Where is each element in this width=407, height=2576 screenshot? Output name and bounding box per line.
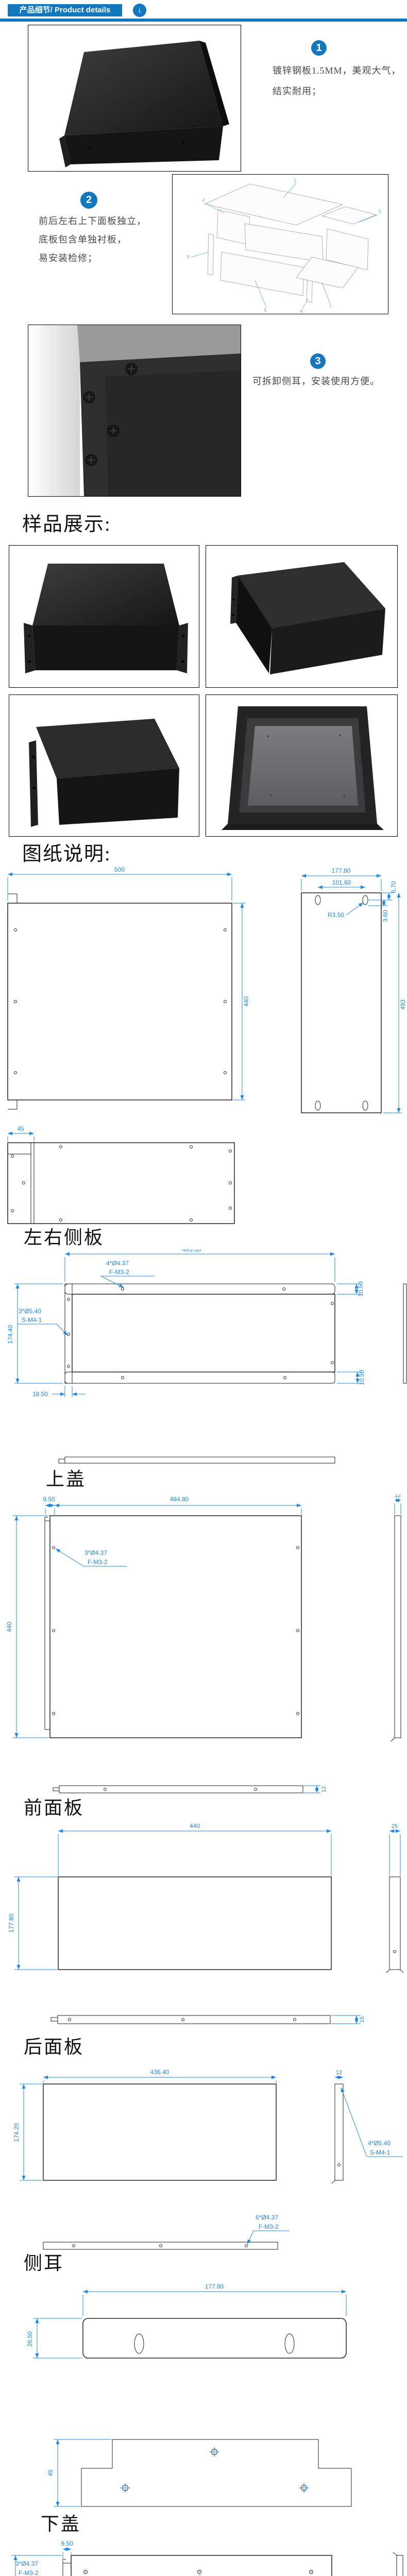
dim-label: 101.60 [332,879,351,886]
dimension-lines: 9.50 3*Ø4.37 F-M3-2 9*Ø5.40 BSO-3.5M3-10… [5,2540,353,2576]
part-number-label: 3 [379,209,381,214]
part-number-label: 7 [329,304,332,309]
feature-2-text-line2: 底板包含单独衬板， [39,235,127,244]
feature-2-text-line1: 前后左右上下面板独立， [39,216,146,226]
part-outline [59,1284,406,1463]
feature-3-text-line1: 可拆卸侧耳，安装使用方便。 [252,377,380,386]
dim-label: 45 [17,1125,24,1132]
dim-label: 3*Ø4.37 [84,1549,107,1556]
part-number-label: 6 [300,309,303,314]
part-outline [43,2084,343,2249]
standoff-holes [84,2570,313,2576]
drawing-ear: 177.80 26.50 45 [0,2277,407,2530]
feature-3-badge: 3 [310,353,326,369]
dim-label: 9.50 [43,1496,55,1503]
feature-2-badge: 2 [80,192,97,209]
dim-label: 12 [336,2070,342,2076]
product-detail-page: 产品细节/ Product details ↓ 1 镀锌钢板1.5MM，美观大气… [0,0,407,2576]
feature-2-text-line3: 易安装检修； [39,253,97,263]
page-title: 产品细节/ Product details [8,4,122,16]
dim-label: 4*Ø4.37 [106,1260,129,1267]
part-outline [51,1877,403,2024]
drawing-overall: 500 440 177.80 101.60 6.70 3.60 R3.50 49… [0,866,407,1119]
dimension-lines: 440 25 177.80 15 [8,1824,400,2024]
sample-photo-3 [9,694,199,837]
dim-label: 177.80 [8,1913,15,1933]
dim-label: 3.60 [382,910,389,922]
part-outline [8,1143,234,1224]
dim-label: 174.20 [13,2123,20,2142]
drawings-heading: 图纸说明: [22,844,111,866]
exploded-wireframe: 1 2 3 4 5 6 7 [173,175,388,314]
cross-marked-holes [120,2447,309,2493]
caption-rear-panel: 后面板 [24,2037,84,2058]
drawing-side-panel: 493.30 4*Ø4.37 F-M3-2 10.50 3*Ø5.40 S-M4… [0,1249,407,1494]
dim-label: 440 [190,1824,200,1829]
dim-label: 484.80 [170,1496,189,1503]
down-arrow-icon: ↓ [133,4,146,17]
part-number-label: 2 [202,198,205,202]
black-enclosure-photo [28,25,241,171]
dimension-lines: 9.50 484.80 12 3*Ø4.37 F-M3-2 440 12 [6,1494,401,1793]
dim-label: 10.50 [357,1281,364,1297]
sample-photo-2 [206,545,398,688]
ear-detail-photo [28,325,241,497]
dim-label: 4*Ø5.40 [368,2140,391,2147]
ear-closeup [28,325,241,496]
dim-label: 6*Ø4.37 [256,2214,278,2221]
dim-label: S-M4-1 [22,1316,42,1324]
caption-front-panel: 前面板 [24,1798,84,1819]
dim-label: 18.50 [32,1391,48,1398]
header-divider-bar [0,19,407,22]
dim-label: 9.50 [61,2540,73,2547]
dimension-lines: 45 [8,1125,34,1142]
drawing-front-panel: 440 25 177.80 15 [0,1824,407,2057]
feature-1-text-line1: 镀锌钢板1.5MM，美观大气， [273,66,401,75]
dim-label: 440 [6,1622,13,1632]
sample-angled [206,546,397,687]
dim-label: 45 [47,2469,54,2477]
caption-bottom-cover: 下盖 [41,2514,81,2535]
caption-side-ear: 侧耳 [24,2253,64,2274]
exploded-view-diagram: 1 2 3 4 5 6 7 [172,174,388,314]
caption-top-cover: 上盖 [46,1469,86,1490]
part-number-label: 4 [187,255,190,259]
dim-label: 12 [321,1786,327,1792]
dim-label: F-M3-2 [259,2223,279,2230]
sample-photo-4 [206,694,398,837]
part-number-label: 5 [264,308,267,313]
drawing-side-view: 45 [0,1119,407,1229]
dim-label: 3*Ø5.40 [19,1308,41,1315]
part-outline [63,2552,403,2576]
exploded-panels [205,184,376,302]
feature-1-badge: 1 [311,40,327,56]
dim-label: 177.80 [205,2283,224,2290]
part-number-label: 1 [294,178,297,183]
dim-label: R3.50 [328,911,344,919]
dim-label: 25 [392,1824,398,1829]
dim-label: S-M4-1 [370,2149,391,2156]
samples-heading: 样品展示: [22,514,111,536]
sample-front-left [9,695,199,836]
drawing-rear-panel: 436.40 12 4*Ø5.40 S-M4-1 174.20 6*Ø4.37 … [0,2059,407,2271]
dim-label: 493.30 [182,1249,201,1253]
dim-label: 500 [114,866,125,873]
part-outline [8,893,381,1113]
dim-label: F-M3-2 [19,2569,39,2576]
dim-label: 26.50 [26,2331,33,2347]
dim-label: F-M3-2 [88,1558,108,1566]
dim-label: 15 [359,2016,365,2023]
dim-label: 12 [395,1494,401,1499]
dim-label: 6.70 [390,881,397,893]
dim-label: F-M3-2 [109,1268,129,1276]
dim-label: 177.80 [332,867,351,874]
drawing-bottom-cover: 9.50 3*Ø4.37 F-M3-2 9*Ø5.40 BSO-3.5M3-10… [0,2535,407,2576]
dimension-lines: 493.30 4*Ø4.37 F-M3-2 10.50 3*Ø5.40 S-M4… [7,1249,365,1398]
sample-photo-1 [9,545,199,688]
caption-side-panels: 左右侧板 [24,1228,104,1248]
dim-label: 3*Ø4.37 [15,2560,38,2567]
dim-label: 440 [243,996,250,1007]
part-outline [81,2318,351,2506]
feature-1-text-line2: 结实耐用； [273,87,321,96]
dim-label: 493 [399,999,406,1010]
sample-front-top [9,546,199,687]
dimension-lines: 436.40 12 4*Ø5.40 S-M4-1 174.20 6*Ø4.37 … [13,2069,403,2244]
sample-interior [206,695,397,836]
part-outline [45,1516,401,1793]
dimension-lines: 177.80 26.50 45 [26,2283,346,2506]
product-photo-main [28,25,241,172]
drawing-top-cover: 9.50 484.80 12 3*Ø4.37 F-M3-2 440 12 [0,1494,407,1821]
dim-label: 174.40 [7,1325,14,1344]
dim-label: 436.40 [150,2069,169,2076]
dim-label: 10.50 [358,1370,365,1385]
